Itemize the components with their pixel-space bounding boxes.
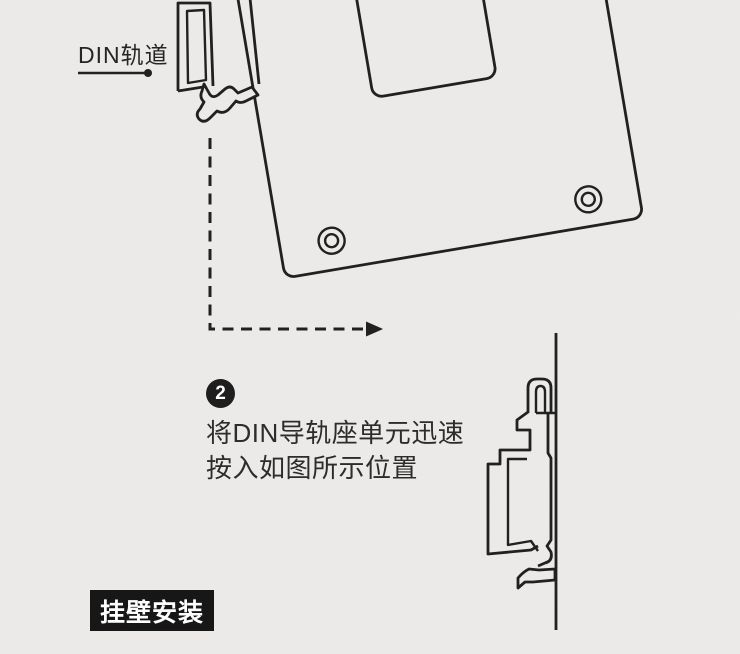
step-instruction-line2: 按入如图所示位置: [206, 451, 464, 486]
bottom-latch-icon: [518, 569, 555, 588]
wall-clip-side-view-icon: [488, 333, 556, 630]
clip-latch-icon: [197, 84, 258, 121]
step-2-badge: 2: [206, 379, 235, 408]
step-number: 2: [215, 383, 226, 405]
leader-line: [78, 69, 152, 77]
step-instruction-line1: 将DIN导轨座单元迅速: [206, 416, 464, 451]
line-art-illustration: [0, 0, 740, 654]
step-instruction: 将DIN导轨座单元迅速 按入如图所示位置: [206, 416, 464, 486]
mount-plate-outline: [228, 0, 643, 278]
wall-mount-section-label: 挂壁安装: [90, 590, 214, 631]
mount-plate-drawing: [226, 0, 643, 278]
leader-dot-icon: [144, 69, 152, 77]
din-rail-label: DIN轨道: [78, 36, 169, 70]
installation-manual-page: DIN轨道 2 将DIN导轨座单元迅速 按入如图所示位置 挂壁安装: [0, 0, 740, 654]
wall-mount-section-label-text: 挂壁安装: [100, 593, 204, 629]
